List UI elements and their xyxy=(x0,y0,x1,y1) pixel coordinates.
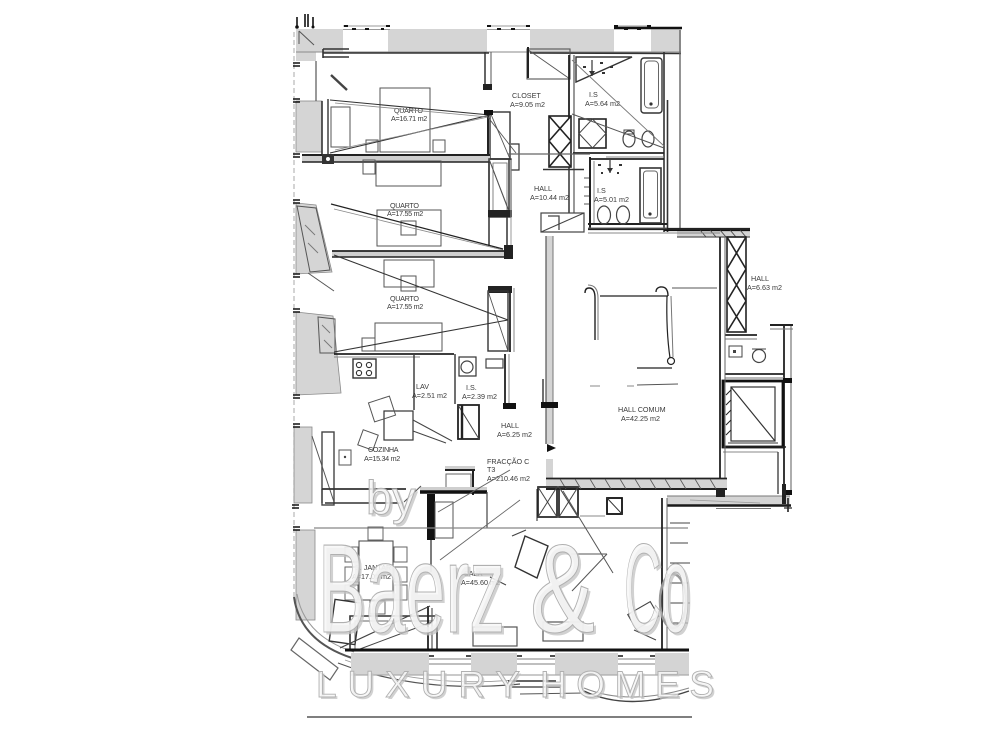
svg-text:COZINHA: COZINHA xyxy=(368,445,399,454)
svg-text:A=6.25 m2: A=6.25 m2 xyxy=(497,430,532,439)
svg-text:A=17.55 m2: A=17.55 m2 xyxy=(387,302,423,311)
svg-text:HALL: HALL xyxy=(501,421,519,430)
svg-text:A=10.44 m2: A=10.44 m2 xyxy=(530,193,569,202)
svg-text:HALL: HALL xyxy=(751,274,769,283)
svg-text:A=9.05 m2: A=9.05 m2 xyxy=(510,100,545,109)
svg-text:HALL COMUM: HALL COMUM xyxy=(618,405,666,414)
svg-text:A=16.71 m2: A=16.71 m2 xyxy=(391,114,427,123)
svg-text:by: by xyxy=(366,471,416,524)
svg-text:A=210.46 m2: A=210.46 m2 xyxy=(487,474,530,483)
svg-text:I.S: I.S xyxy=(597,186,606,195)
svg-text:A=42.25 m2: A=42.25 m2 xyxy=(621,414,660,423)
svg-text:I.S.: I.S. xyxy=(466,383,477,392)
svg-text:A=15.34 m2: A=15.34 m2 xyxy=(364,454,400,463)
svg-text:&: & xyxy=(530,518,595,659)
svg-text:A=5.01 m2: A=5.01 m2 xyxy=(594,195,629,204)
svg-text:Baerz: Baerz xyxy=(318,518,505,659)
svg-text:T3: T3 xyxy=(487,465,495,474)
svg-text:A=6.63 m2: A=6.63 m2 xyxy=(747,283,782,292)
svg-text:Co: Co xyxy=(624,518,690,659)
svg-text:A=2.51 m2: A=2.51 m2 xyxy=(412,391,447,400)
svg-text:I.S: I.S xyxy=(589,90,598,99)
svg-text:A=2.39 m2: A=2.39 m2 xyxy=(462,392,497,401)
svg-text:CLOSET: CLOSET xyxy=(512,91,541,100)
svg-text:LAV: LAV xyxy=(416,382,429,391)
svg-text:HALL: HALL xyxy=(534,184,552,193)
